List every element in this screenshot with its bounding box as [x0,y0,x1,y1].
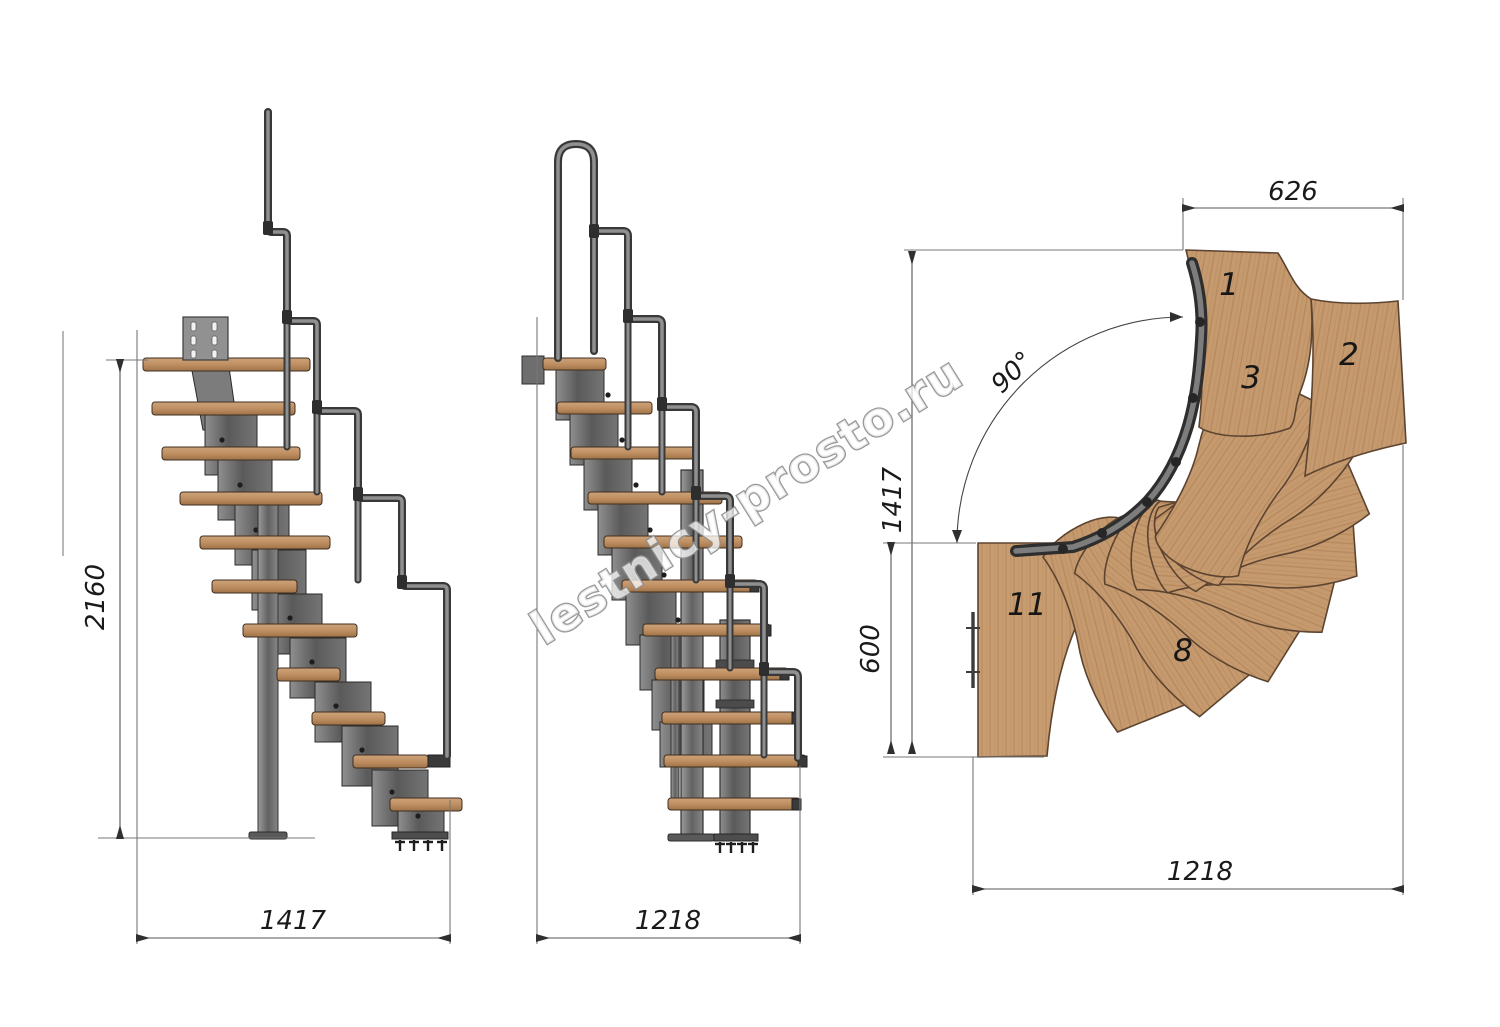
tread [212,580,297,593]
tread [152,402,295,415]
tread [557,402,652,414]
tread [390,798,462,811]
tread [664,755,806,767]
tread [243,624,357,637]
dim-side-width: 1417 [260,906,327,936]
dim-plan-angle: 90° [986,346,1040,400]
front-wall-plate [522,356,544,384]
tread-number-3: 3 [1241,360,1261,396]
dim-side-height: 2160 [81,564,111,630]
dim-plan-top-width: 626 [1268,177,1318,207]
tread [312,712,385,725]
tread-number-11: 11 [1007,587,1046,623]
arc-arrow [1170,312,1183,322]
side-anchor-bolts [392,832,448,851]
dim-plan-bottom-width: 1218 [1167,857,1233,887]
technical-drawing: 2160 1417 [0,0,1500,1027]
tread [543,358,606,370]
arc-arrow [952,530,962,543]
staircase-drawing-canvas: 2160 1417 [0,0,1500,1027]
tread-2 [1305,299,1406,476]
plan-view: 626 90° 1417 600 1218 1 2 3 8 11 [856,177,1406,895]
side-elevation-view: 2160 1417 [63,112,462,944]
tread-number-1: 1 [1219,267,1239,303]
tread-number-2: 2 [1339,337,1359,373]
tread [571,447,694,459]
tread [162,447,300,460]
front-anchor-bolts [715,842,758,853]
tread [668,798,800,810]
dim-plan-depth-total: 1417 [878,466,908,533]
tread [643,624,770,636]
tread [200,536,330,549]
dim-plan-landing-depth: 600 [856,624,886,674]
dim-front-width: 1218 [635,906,701,936]
tread-number-8: 8 [1173,633,1193,669]
side-mount-plate [183,317,228,360]
tread [180,492,322,505]
tread [277,668,340,681]
tread [662,712,800,724]
tread [353,755,428,768]
